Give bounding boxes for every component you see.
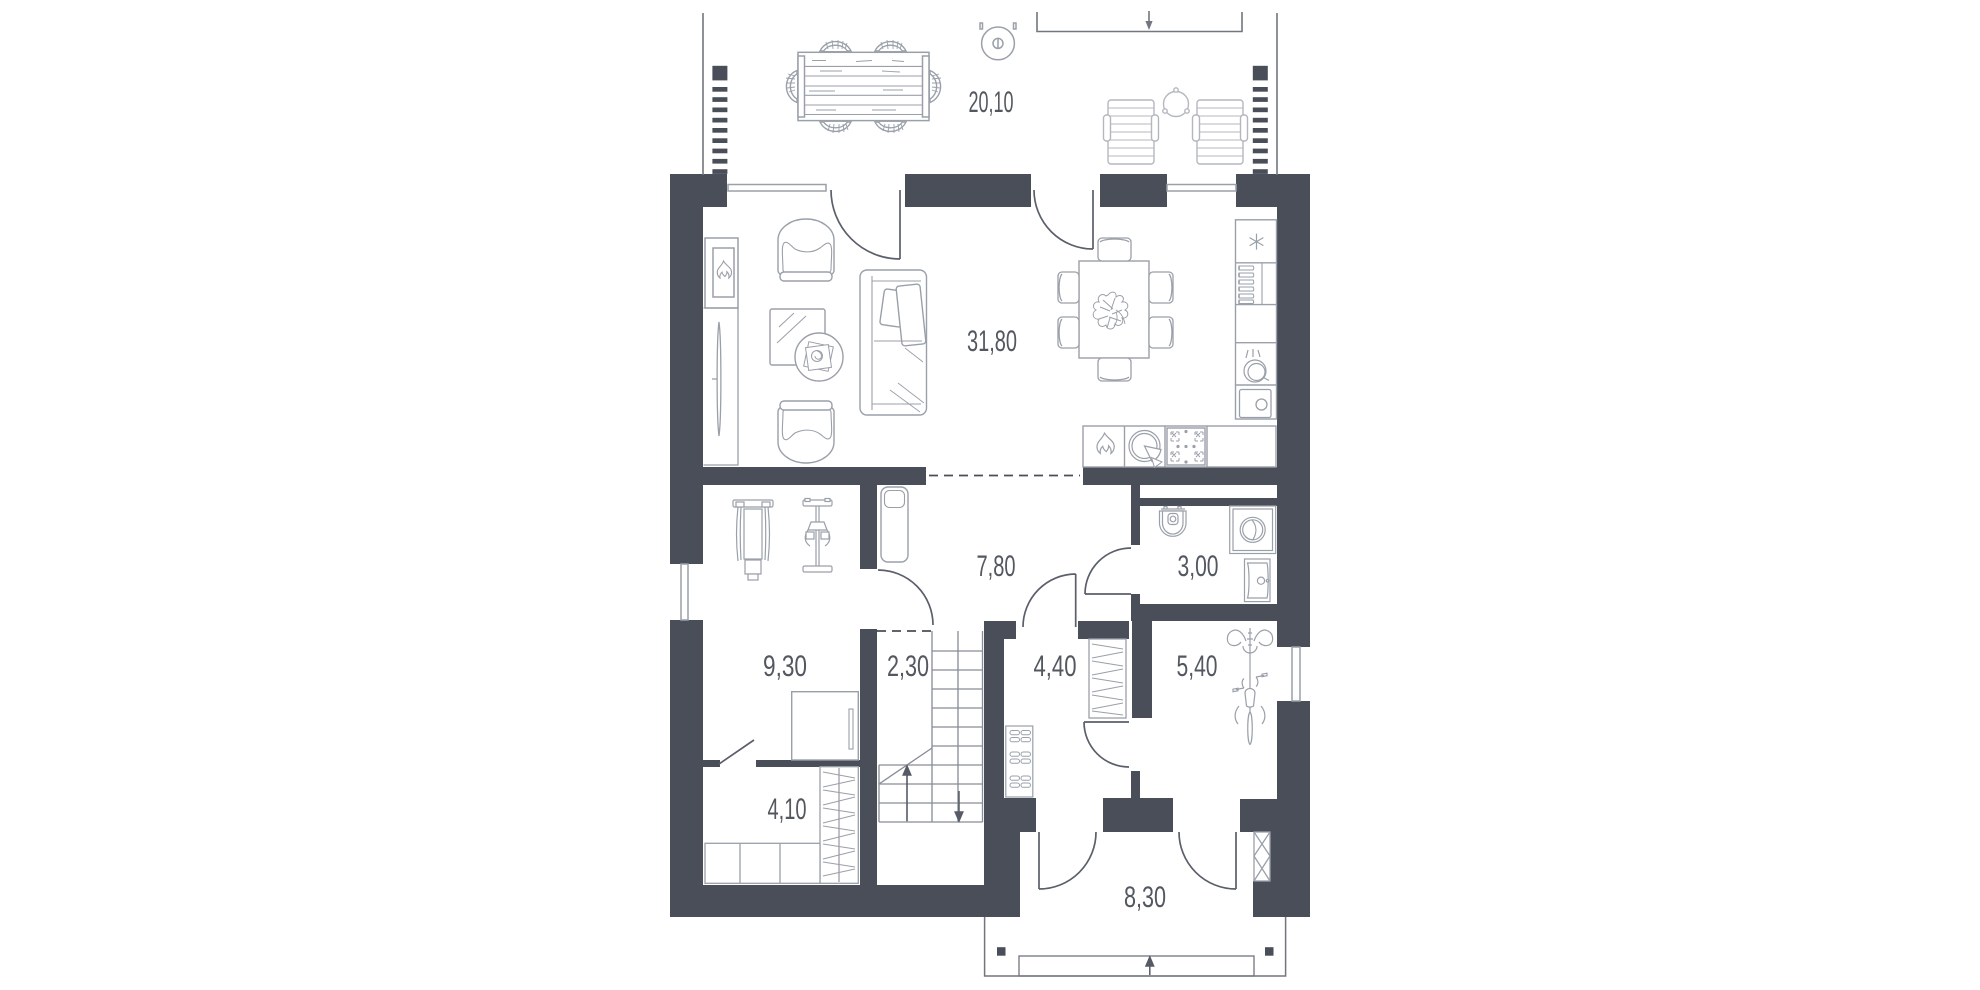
- svg-text:5,40: 5,40: [1177, 650, 1218, 683]
- svg-text:20,10: 20,10: [969, 86, 1014, 119]
- svg-text:31,80: 31,80: [967, 325, 1017, 358]
- svg-text:8,30: 8,30: [1124, 881, 1166, 914]
- svg-text:3,00: 3,00: [1178, 550, 1219, 583]
- svg-text:4,40: 4,40: [1034, 650, 1077, 683]
- svg-text:7,80: 7,80: [977, 550, 1016, 583]
- svg-text:4,10: 4,10: [768, 793, 807, 826]
- svg-text:9,30: 9,30: [763, 650, 807, 683]
- svg-text:2,30: 2,30: [887, 650, 929, 683]
